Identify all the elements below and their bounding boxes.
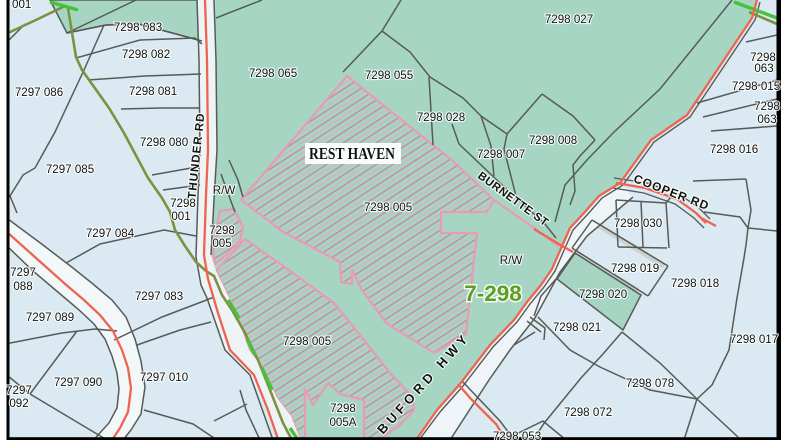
svg-text:7298 080: 7298 080 <box>140 136 188 149</box>
svg-text:063: 063 <box>757 113 776 126</box>
svg-text:7297 010: 7297 010 <box>140 371 188 384</box>
svg-text:7297 089: 7297 089 <box>26 311 74 324</box>
svg-text:7297 083: 7297 083 <box>135 290 183 303</box>
svg-text:7297 084: 7297 084 <box>86 227 135 240</box>
svg-text:7298 020: 7298 020 <box>579 288 627 301</box>
svg-text:7297: 7297 <box>10 266 36 279</box>
svg-text:7297: 7297 <box>6 384 32 397</box>
svg-text:7298 005: 7298 005 <box>364 201 412 214</box>
svg-text:REST HAVEN: REST HAVEN <box>309 144 395 163</box>
svg-text:7298: 7298 <box>754 100 780 113</box>
svg-text:001: 001 <box>12 0 31 11</box>
svg-text:7298 055: 7298 055 <box>365 69 413 82</box>
svg-text:7298 028: 7298 028 <box>417 111 465 124</box>
svg-text:7298 021: 7298 021 <box>553 321 601 334</box>
svg-text:001: 001 <box>171 210 190 223</box>
svg-text:005A: 005A <box>329 416 356 429</box>
svg-text:7298 027: 7298 027 <box>545 13 593 26</box>
svg-text:7298 005: 7298 005 <box>283 335 331 348</box>
svg-text:7298 053: 7298 053 <box>493 430 541 440</box>
svg-text:092: 092 <box>9 397 28 410</box>
svg-text:7-298: 7-298 <box>464 281 522 306</box>
svg-text:7298 072: 7298 072 <box>564 406 612 419</box>
svg-text:7298 082: 7298 082 <box>122 48 170 61</box>
svg-text:7298 078: 7298 078 <box>626 377 674 390</box>
svg-text:7297 085: 7297 085 <box>46 163 94 176</box>
svg-text:7298 016: 7298 016 <box>710 143 758 156</box>
svg-text:7298 065: 7298 065 <box>249 67 297 80</box>
svg-text:7298 019: 7298 019 <box>611 262 659 275</box>
svg-text:7298: 7298 <box>330 402 356 415</box>
svg-text:7298 008: 7298 008 <box>529 134 577 147</box>
svg-text:7298: 7298 <box>209 224 235 237</box>
svg-text:005: 005 <box>212 237 231 250</box>
svg-text:R/W: R/W <box>213 184 236 197</box>
svg-text:063: 063 <box>754 62 773 75</box>
svg-text:7297 090: 7297 090 <box>54 376 102 389</box>
svg-text:7298 007: 7298 007 <box>477 148 525 161</box>
svg-text:7298 030: 7298 030 <box>614 217 662 230</box>
svg-text:7298 017: 7298 017 <box>730 333 778 346</box>
svg-text:7297 086: 7297 086 <box>15 86 63 99</box>
svg-text:R/W: R/W <box>500 254 523 267</box>
svg-text:7298 081: 7298 081 <box>129 85 177 98</box>
svg-text:7298 018: 7298 018 <box>671 277 719 290</box>
svg-text:7298 083: 7298 083 <box>114 21 162 34</box>
svg-text:088: 088 <box>13 280 32 293</box>
svg-text:7298 015: 7298 015 <box>732 80 780 93</box>
